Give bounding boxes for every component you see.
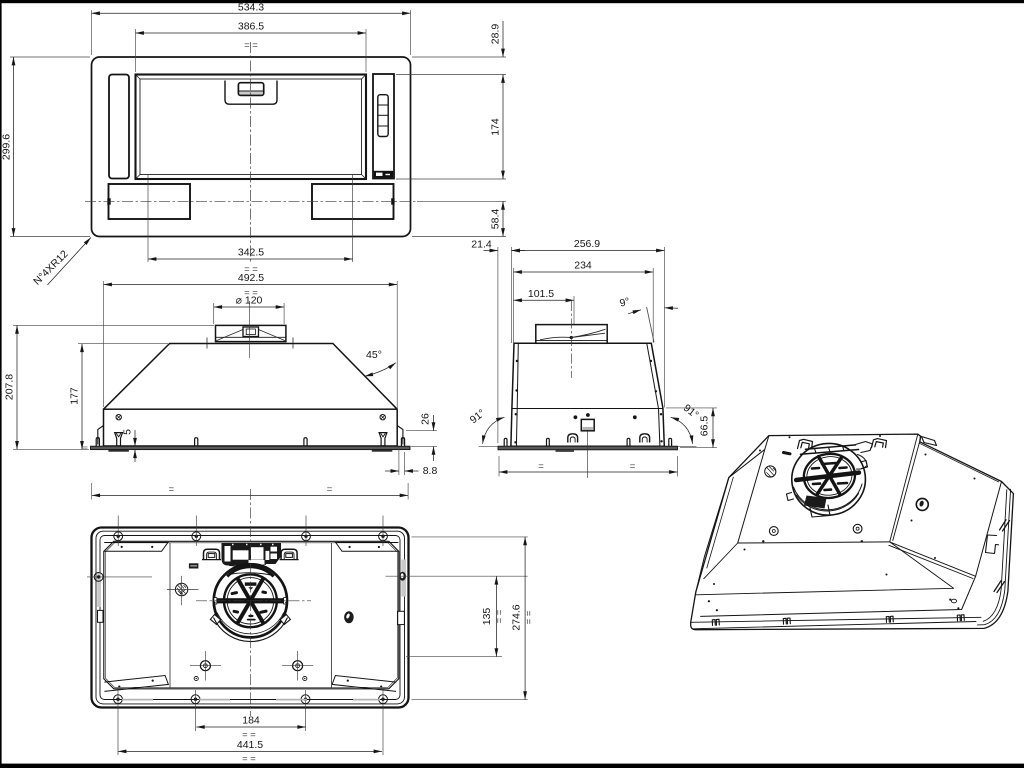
svg-text:5: 5: [122, 429, 134, 435]
svg-text:174: 174: [490, 118, 502, 136]
svg-text:441.5: 441.5: [237, 739, 263, 751]
svg-text:= =: = =: [524, 610, 535, 624]
svg-text:386.5: 386.5: [238, 21, 264, 33]
svg-text:26: 26: [420, 413, 432, 425]
svg-text:101.5: 101.5: [528, 288, 554, 300]
svg-text:492.5: 492.5: [238, 272, 264, 284]
svg-text:= =: = =: [244, 288, 258, 299]
svg-text:45°: 45°: [366, 349, 382, 361]
svg-text:21.4: 21.4: [471, 239, 492, 251]
svg-text:342.5: 342.5: [238, 247, 264, 259]
svg-text:135: 135: [481, 608, 493, 626]
svg-text:177: 177: [69, 387, 81, 405]
svg-text:=: =: [169, 484, 175, 495]
svg-text:66.5: 66.5: [699, 416, 711, 437]
svg-text:534.3: 534.3: [238, 2, 264, 14]
svg-text:184: 184: [242, 715, 260, 727]
svg-text:=: =: [630, 461, 636, 472]
svg-text:299.6: 299.6: [1, 134, 13, 160]
svg-text:=: =: [327, 484, 333, 495]
svg-text:58.4: 58.4: [490, 209, 502, 230]
svg-text:207.8: 207.8: [4, 374, 16, 400]
svg-text:28.9: 28.9: [490, 24, 502, 45]
svg-text:8.8: 8.8: [423, 465, 438, 477]
svg-text:=: =: [538, 461, 544, 472]
svg-text:256.9: 256.9: [574, 238, 600, 250]
svg-text:274.6: 274.6: [511, 604, 523, 630]
svg-text:= =: = =: [242, 754, 256, 765]
svg-text:= =: = =: [244, 40, 258, 51]
svg-text:= =: = =: [494, 609, 505, 623]
svg-text:234: 234: [574, 260, 592, 272]
